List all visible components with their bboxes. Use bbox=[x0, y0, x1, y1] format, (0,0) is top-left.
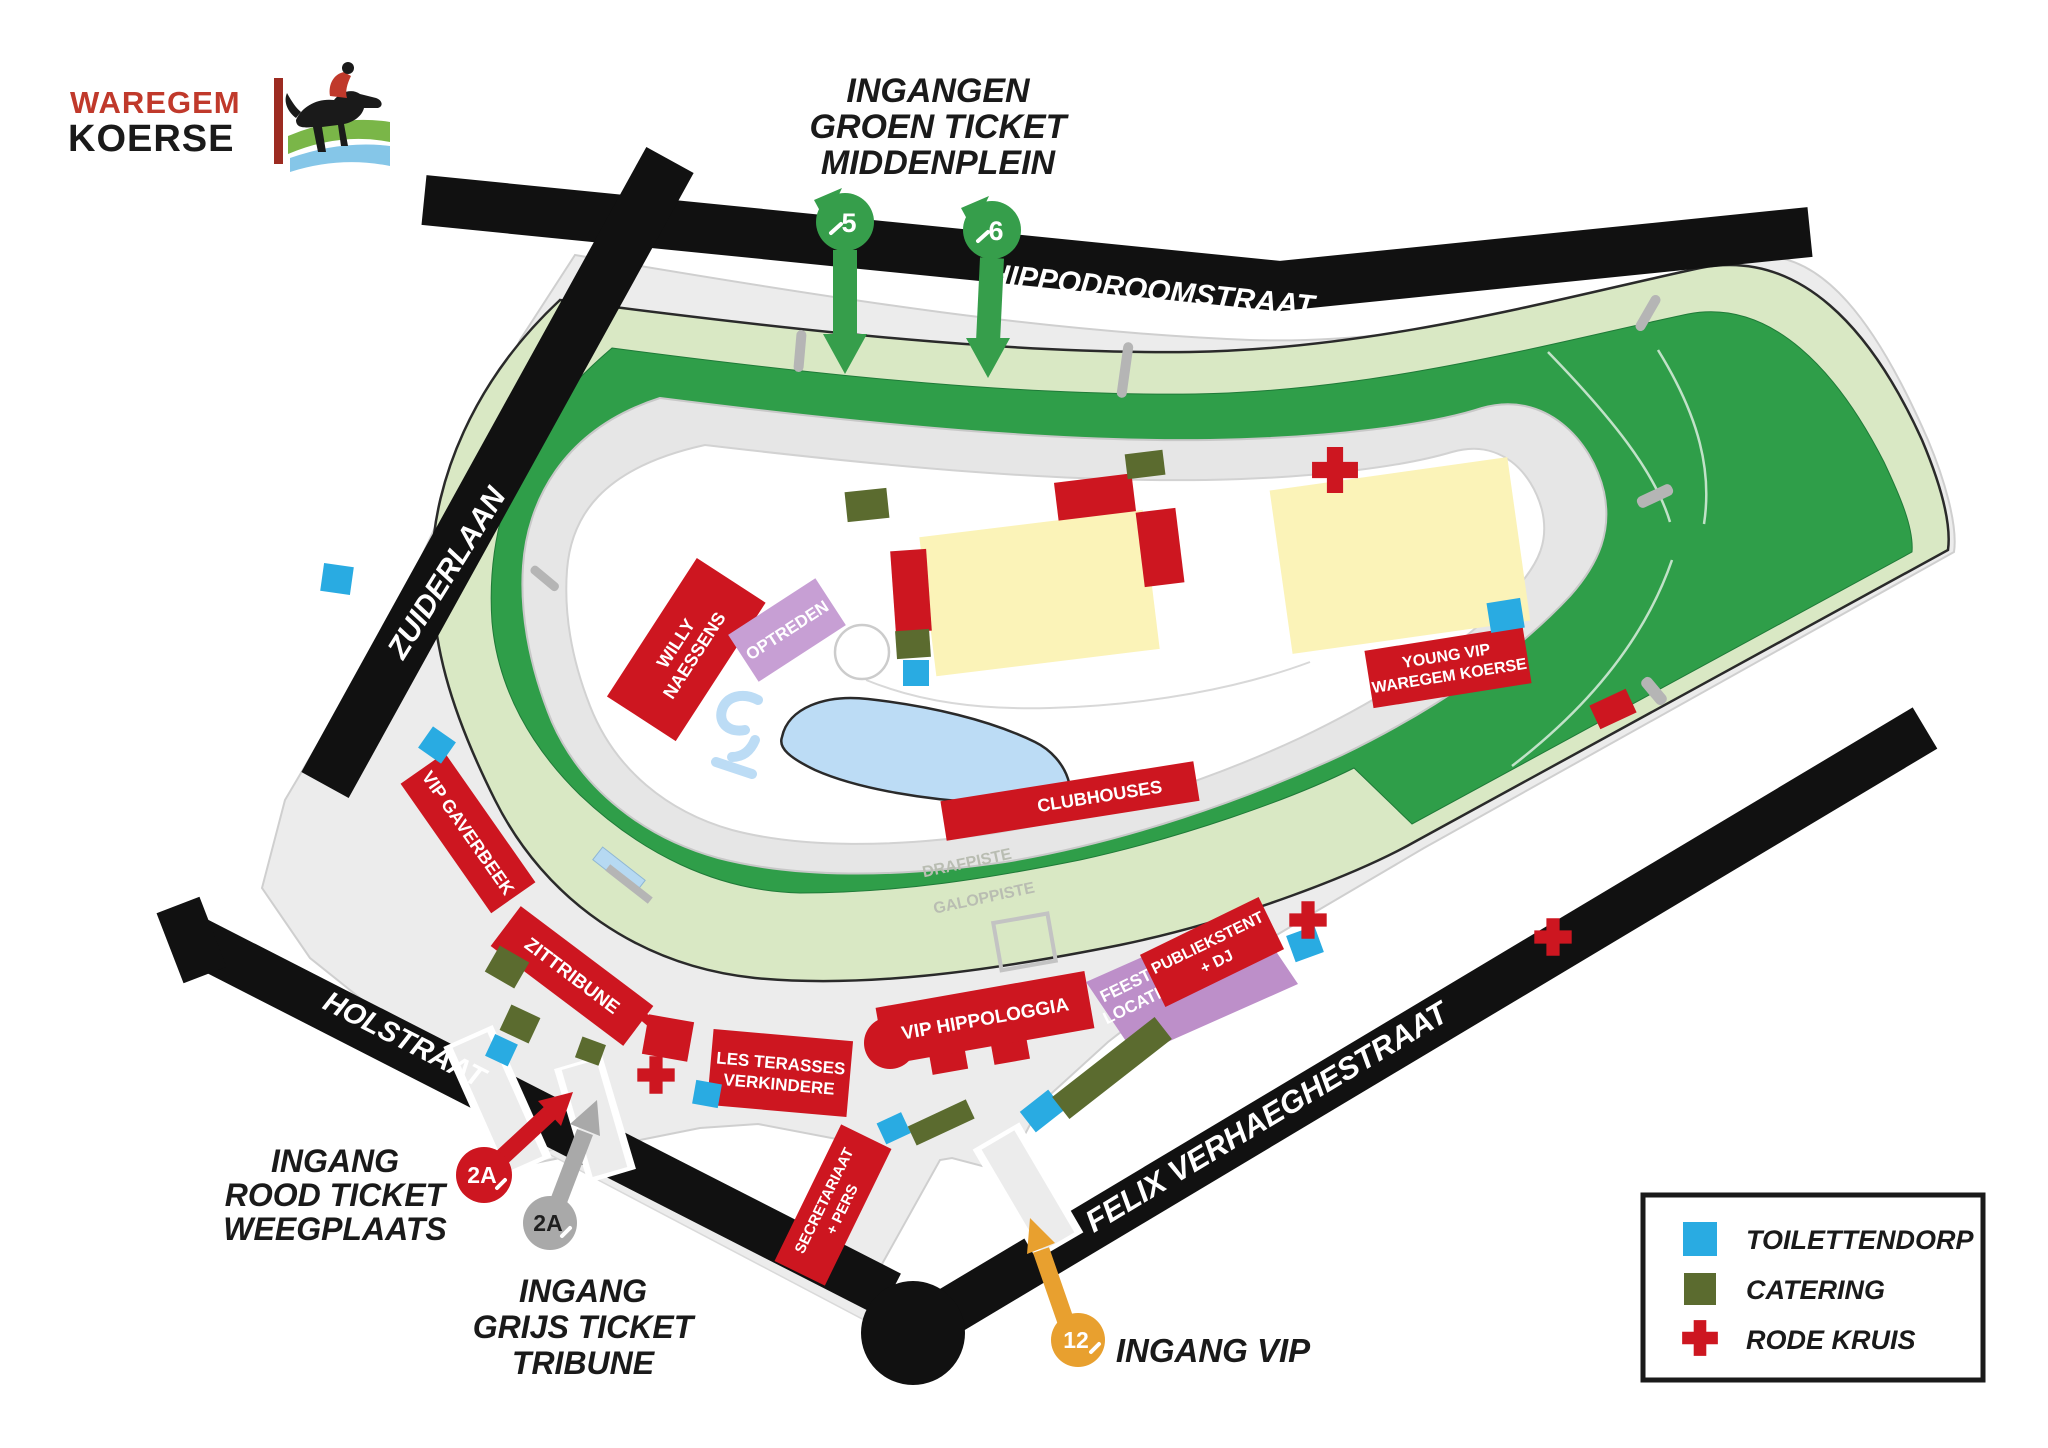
grijs-ticket-text: INGANG bbox=[519, 1273, 647, 1309]
catering-icon bbox=[845, 488, 890, 522]
venue-les-terasses: LES TERASSES VERKINDERE bbox=[707, 1029, 853, 1117]
grijs-ticket-text3: TRIBUNE bbox=[512, 1345, 656, 1381]
waregem-koerse-map: DRAFPISTE GALOPPISTE HIPPODROOMSTRAAT ZU… bbox=[0, 0, 2048, 1448]
catering-icon bbox=[1684, 1273, 1716, 1305]
grijs-ticket-text2: GRIJS TICKET bbox=[473, 1309, 696, 1345]
logo-koerse: KOERSE bbox=[68, 118, 234, 160]
logo-waregem: WAREGEM bbox=[70, 85, 241, 120]
roundabout bbox=[861, 1281, 965, 1385]
legend: TOILETTENDORP CATERING RODE KRUIS bbox=[1643, 1195, 1983, 1380]
entrance-6-number: 6 bbox=[988, 216, 1003, 246]
legend-toilettendorp: TOILETTENDORP bbox=[1746, 1225, 1975, 1255]
yellow-tent-west bbox=[919, 510, 1159, 676]
toilet-icon bbox=[1683, 1222, 1717, 1256]
logo: WAREGEM KOERSE bbox=[68, 62, 390, 172]
entrance-grijs-number: 2A bbox=[533, 1210, 562, 1236]
logo-horse-icon bbox=[274, 62, 390, 172]
rood-ticket-text3: WEEGPLAATS bbox=[223, 1211, 447, 1247]
entrance-vip-number: 12 bbox=[1063, 1327, 1089, 1353]
toilet-icon bbox=[692, 1080, 722, 1108]
toilet-icon bbox=[903, 660, 929, 686]
green-ticket-title3: MIDDENPLEIN bbox=[821, 144, 1057, 182]
toilet-icon bbox=[320, 563, 354, 595]
paddock-circle bbox=[835, 625, 889, 679]
catering-icon bbox=[895, 629, 931, 659]
zittribune-annex bbox=[642, 1014, 694, 1061]
green-ticket-title: INGANGEN bbox=[846, 72, 1031, 110]
legend-rode-kruis: RODE KRUIS bbox=[1746, 1325, 1916, 1355]
toilet-icon bbox=[1486, 598, 1524, 633]
catering-icon bbox=[1125, 450, 1166, 479]
rood-ticket-text: INGANG bbox=[271, 1143, 399, 1179]
map-svg: DRAFPISTE GALOPPISTE HIPPODROOMSTRAAT ZU… bbox=[0, 0, 2048, 1448]
green-ticket-title2: GROEN TICKET bbox=[810, 108, 1070, 146]
entrance-5-number: 5 bbox=[841, 208, 856, 238]
rood-ticket-text2: ROOD TICKET bbox=[225, 1177, 448, 1213]
legend-catering: CATERING bbox=[1746, 1275, 1885, 1305]
ingang-vip-text: INGANG VIP bbox=[1116, 1332, 1311, 1369]
entrance-rood-number: 2A bbox=[467, 1162, 496, 1188]
